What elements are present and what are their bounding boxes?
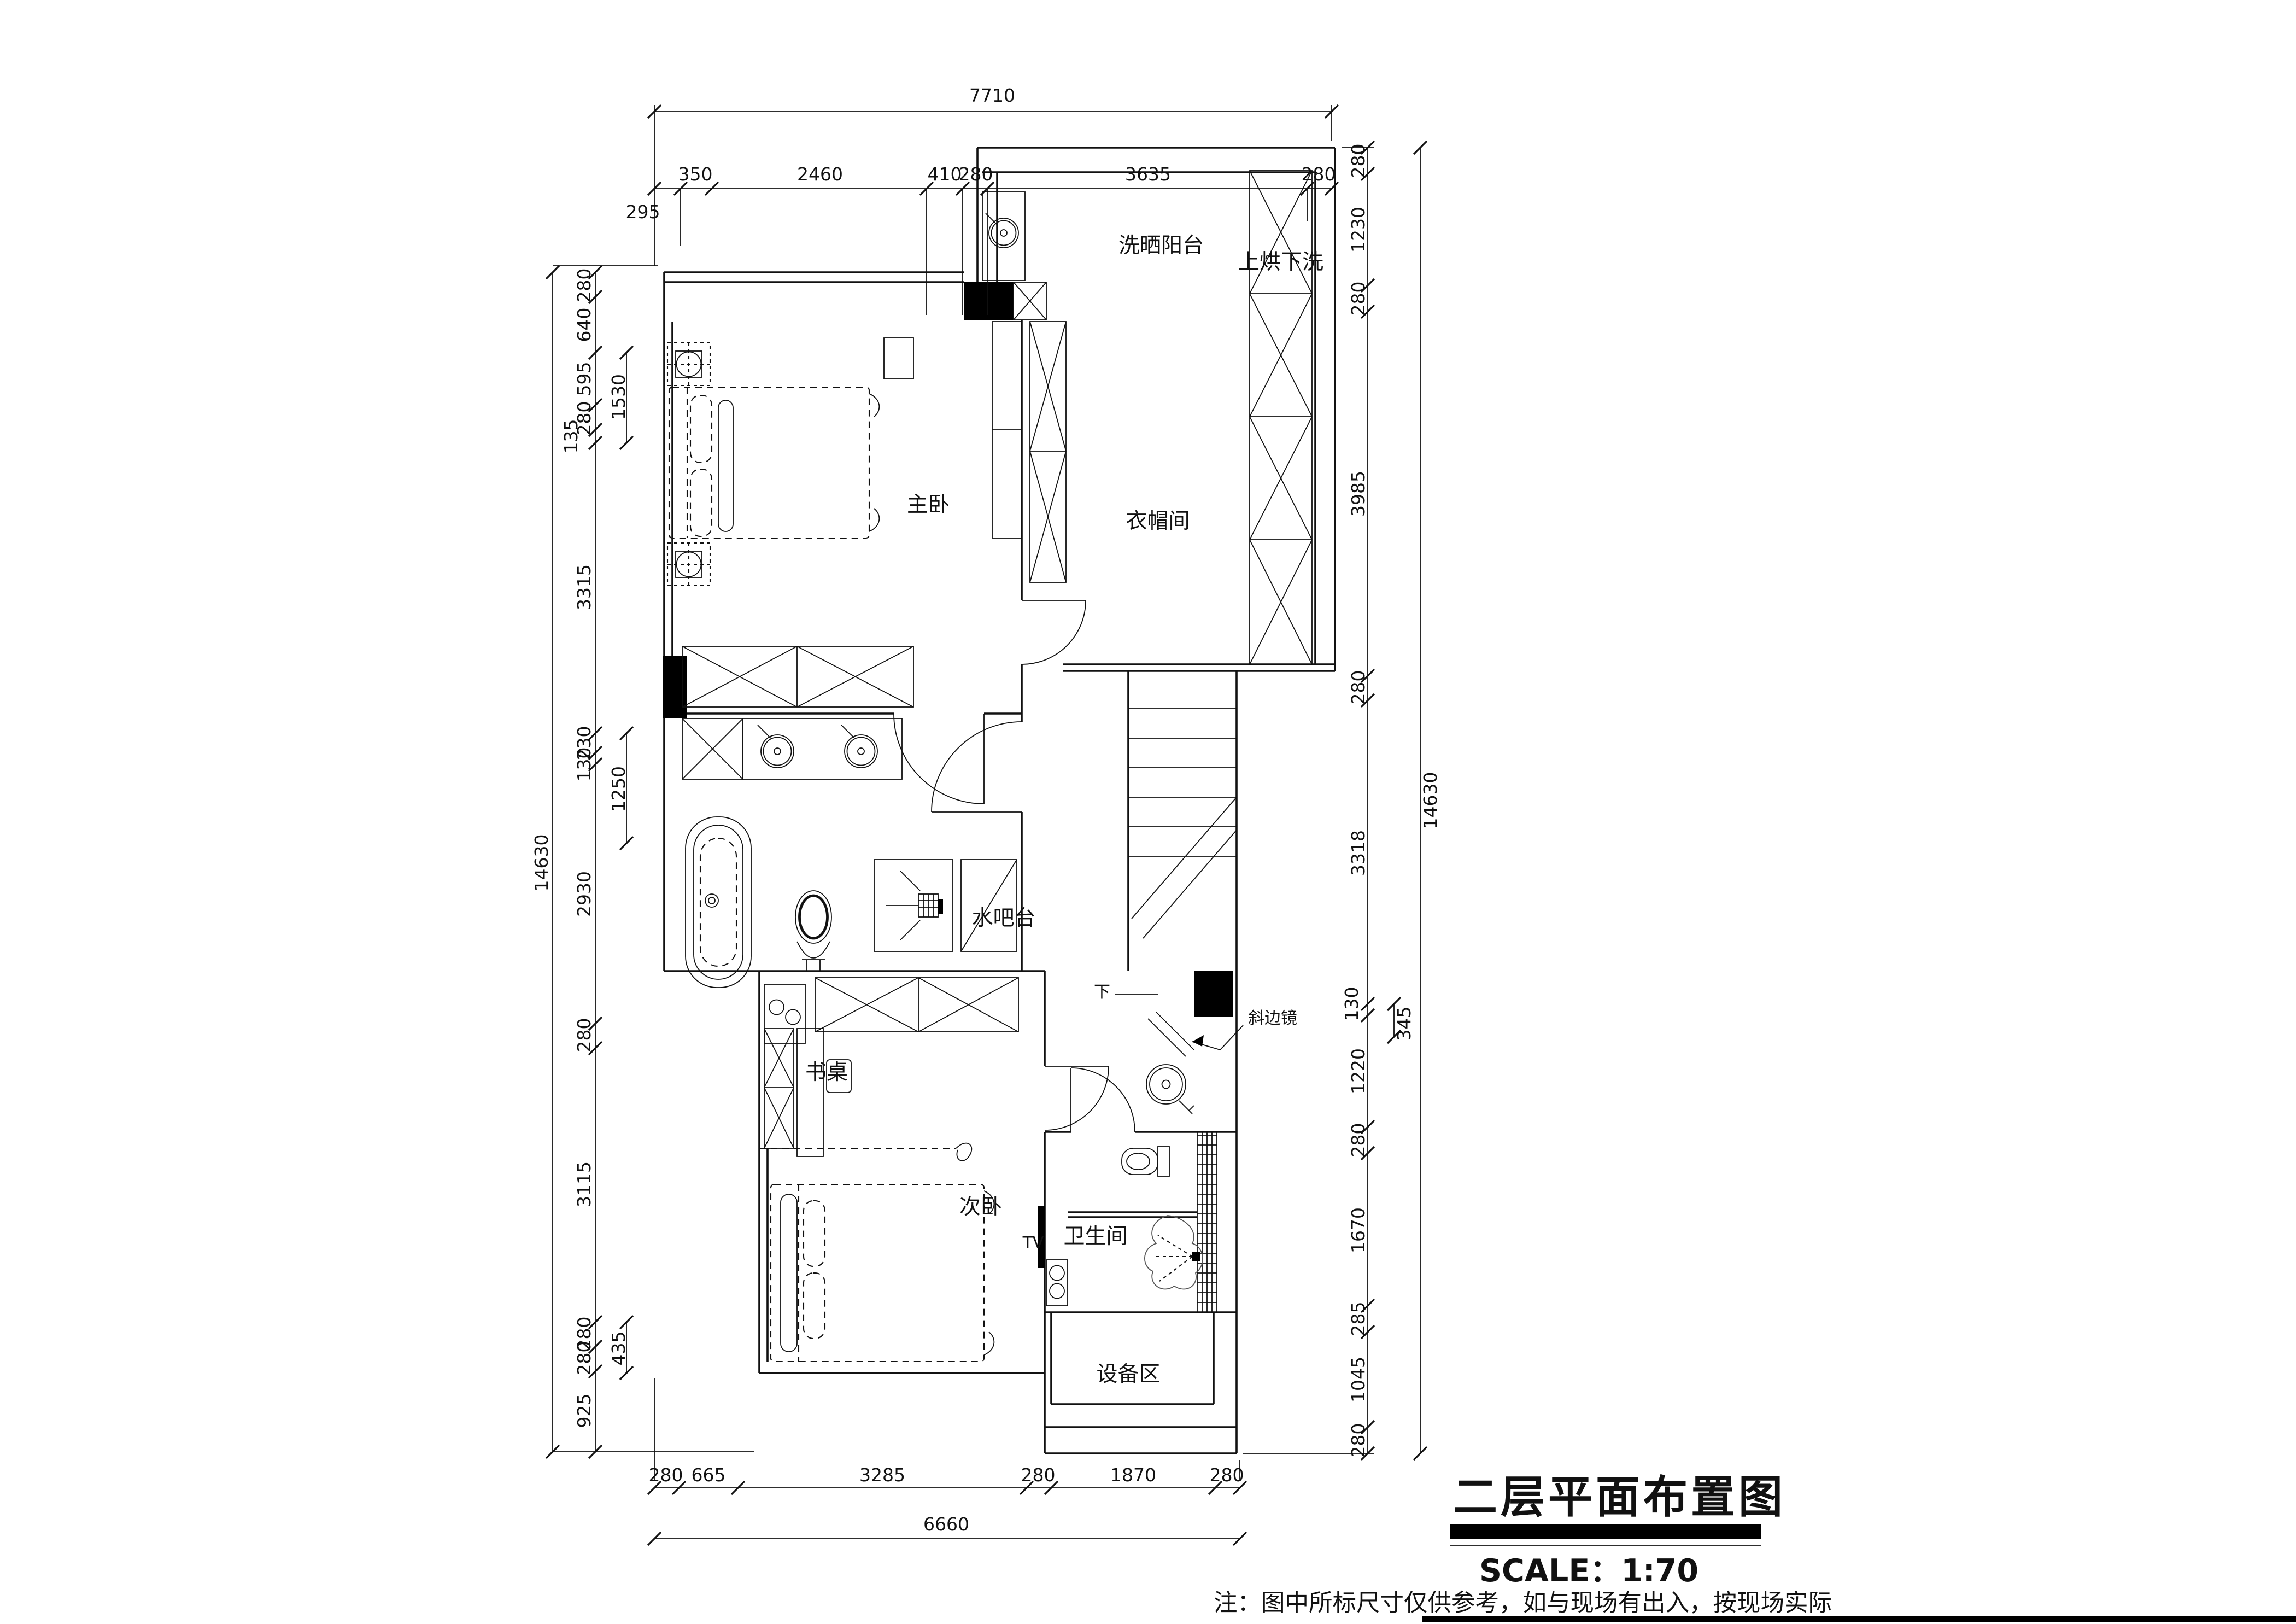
junction-cabinet [1014,282,1046,320]
drawing-title: 二层平面布置图 [1453,1472,1786,1523]
wardrobe-row [682,646,913,707]
dim-left: 595 [573,362,595,396]
pillow [690,395,712,463]
dim-right: 280 [1348,144,1369,178]
dim-right: 280 [1348,1123,1369,1158]
dim-top-overall: 7710 [969,85,1015,106]
master-bedroom-door [1022,600,1086,664]
wall-column [1194,971,1233,1017]
dim-bottom: 1870 [1110,1464,1156,1486]
master-bed [669,387,879,538]
scale-label: SCALE：1:70 [1479,1553,1698,1589]
dim-top: 280 [959,163,993,185]
closet-wardrobe [1030,322,1066,582]
dim-left: 925 [573,1394,595,1428]
dim-right: 280 [1348,670,1369,705]
label-desk: 书桌 [805,1060,848,1085]
shower [874,860,953,951]
dim-top: 350 [678,163,713,185]
washbasin [1046,1260,1068,1306]
desk [797,1029,823,1156]
vanity [682,718,902,779]
title-underline-bar [1450,1524,1761,1539]
dim-left: 130 [573,747,595,782]
dim-right: 280 [1348,1423,1369,1458]
dim-bottom-overall: 6660 [923,1514,969,1535]
label-water-bar: 水吧台 [971,906,1035,931]
dim-left: 280 [573,1018,595,1053]
nightstand [667,343,710,385]
bedroom-cabinet [992,322,1022,538]
dim-right: 3985 [1348,471,1369,517]
dim-right: 3318 [1348,830,1369,876]
dim-right: 1045 [1348,1357,1369,1403]
second-bedroom-door [1045,1066,1109,1130]
dim-left-inner: 1530 [608,374,629,420]
drawing-sheet: 7710 295 350 2460 410 280 3635 280 14630… [0,0,2296,1624]
dim-left-inner: 435 [608,1331,629,1366]
title-block: 二层平面布置图 SCALE：1:70 注：图中所标尺寸仅供参考，如与现场有出入，… [1214,1472,2296,1622]
bolster [781,1194,797,1352]
stairs [1115,709,1237,994]
dim-left: 280 [573,268,595,303]
dim-left: 3115 [573,1161,595,1207]
label-laundry-balcony: 洗晒阳台 [1118,233,1204,258]
mosaic-wall-hatch [1197,1132,1217,1312]
toilet [795,891,831,971]
dim-right: 1670 [1348,1207,1369,1253]
label-bathroom: 卫生间 [1063,1224,1127,1249]
pillow [690,469,712,536]
label-master-bedroom: 主卧 [907,493,950,517]
dim-right: 1220 [1348,1048,1369,1094]
floor-plan-svg: 7710 295 350 2460 410 280 3635 280 14630… [0,0,2296,1624]
dim-left: 3315 [573,564,595,610]
dim-left: 135 [560,419,582,454]
dim-left-inner: 1250 [608,766,629,812]
pillow [804,1201,825,1266]
laundry-sink [989,218,1018,248]
dim-left: 2930 [573,871,595,917]
label-stairs-down: 下 [1094,983,1110,1002]
dim-left: 280 [573,1341,595,1376]
dim-top: 280 [1302,163,1336,185]
dim-right: 280 [1348,282,1369,316]
washer-dryer-cabinet [1250,171,1312,664]
dim-bottom: 3285 [859,1464,905,1486]
dim-bottom: 280 [649,1464,683,1486]
dim-bottom: 280 [1210,1464,1244,1486]
dim-bottom: 665 [692,1464,726,1486]
shower-spray [1145,1216,1203,1289]
sink [845,735,877,768]
powder-corner [1146,1012,1243,1114]
beveled-mirror-shape [1148,1012,1194,1056]
drawing-note: 注：图中所标尺寸仅供参考，如与现场有出入，按现场实际 [1214,1590,1832,1617]
dim-right: 130 [1341,987,1362,1021]
dim-top: 295 [626,201,660,223]
doors [894,600,1135,1132]
label-second-bedroom: 次卧 [959,1195,1002,1219]
label-beveled-mirror: 斜边镜 [1248,1009,1297,1028]
pillow [804,1273,825,1339]
sink [761,735,794,768]
toilet [1122,1147,1169,1176]
master-bath-fixtures [682,646,1017,988]
label-tv: TV [1022,1234,1044,1253]
stool [884,338,913,379]
nightstand [667,543,710,586]
second-bedroom-furniture [759,978,1045,1362]
dim-bottom: 280 [1021,1464,1056,1486]
label-walk-in-closet: 衣帽间 [1126,509,1190,534]
dim-left-overall: 14630 [531,834,552,892]
room-labels: 洗晒阳台 上烘下洗 主卧 衣帽间 水吧台 书桌 次卧 TV 卫生间 设备区 斜边… [805,233,1323,1387]
cabinet-row [764,978,1018,1043]
corner-sink [1146,1065,1186,1104]
label-equipment-area: 设备区 [1096,1362,1160,1387]
dimension-lines [546,105,1427,1545]
desk-wardrobe [764,1029,851,1156]
dim-top: 410 [928,163,962,185]
bolster [718,400,733,531]
leader-arrow [1192,1035,1204,1047]
wall-column [663,656,687,718]
dim-top: 2460 [797,163,843,185]
bottom-rule [1422,1616,2296,1622]
master-bedroom-furniture [667,322,1022,586]
bathtub [686,817,751,988]
master-bath-door [932,722,1022,812]
bath-inner-door [894,714,984,804]
dim-left: 640 [573,308,595,342]
dim-right-overall: 14630 [1420,772,1441,829]
dim-right: 285 [1348,1302,1369,1336]
dim-right-inner: 345 [1393,1007,1415,1041]
wall-column [964,282,1014,320]
label-washer-dryer: 上烘下洗 [1238,250,1323,274]
dim-right: 1230 [1348,207,1369,253]
dim-top: 3635 [1125,163,1171,185]
bathroom-door [1071,1068,1135,1132]
